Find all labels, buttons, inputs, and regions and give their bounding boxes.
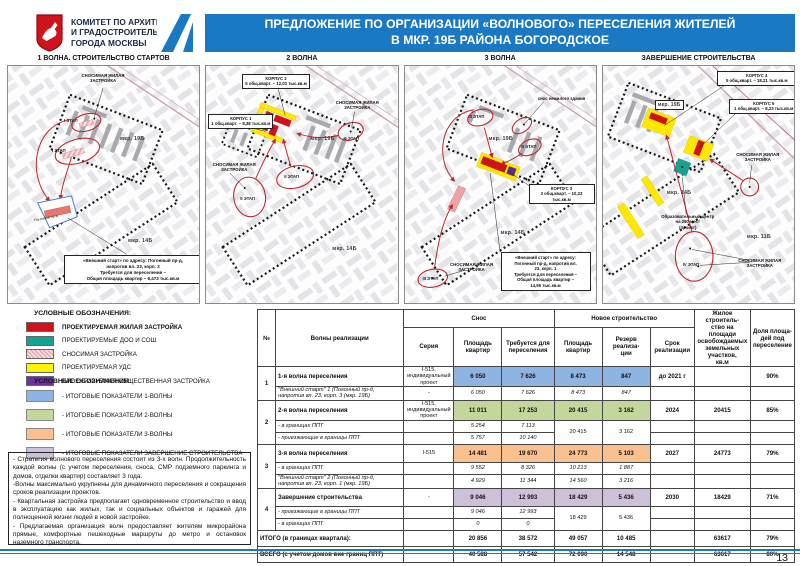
legend-label: ПРОЕКТИРУЕМЫЕ ДОО И СОШ [62, 337, 156, 344]
swatch-wave3 [26, 428, 54, 440]
empty-cell [650, 506, 694, 518]
empty-cell [650, 420, 694, 432]
label-mkr-19b: мкр. 19Б [310, 136, 334, 143]
cell-new-reserve: 3 162 [602, 400, 650, 420]
empty-cell [694, 420, 750, 432]
label-mkr-14b: мкр. 14Б [128, 238, 152, 245]
label-mkr-19b: мкр. 19Б [120, 136, 144, 143]
cell-sub-name: - приезжающие в границы ППТ [276, 432, 404, 444]
cell-new-area: 49 057 [554, 530, 602, 546]
table-row-completion-sub2: - в границах ППТ 0 0 [258, 518, 795, 530]
label-stage-2b: II ЭТАП [240, 196, 255, 201]
empty-cell [694, 432, 750, 444]
empty-cell [404, 432, 454, 444]
map-panel-wave2: КОРПУС 2 5 общ.кварт. – 12,03 тыс.кв.м К… [205, 65, 398, 304]
cell-snos-area: 11 011 [454, 400, 502, 420]
moscow-coat-of-arms-icon [36, 14, 63, 52]
cell-new-area: 14 560 [554, 474, 602, 488]
cell-snos-need: 0 [502, 518, 554, 530]
cell-wave-name: Завершение строительства [276, 488, 404, 506]
cell-dolya: 90% [750, 367, 794, 387]
label-korpus-3: КОРПУС 3 3 общ.кварт. – 10,23 тыс.кв.м [529, 184, 595, 204]
cell-new-area: 18 429 [554, 488, 602, 506]
legend-label: ПРОЕКТИРУЕМАЯ УДС [62, 364, 131, 371]
empty-cell [404, 506, 454, 518]
col-header-num: № [258, 310, 276, 367]
label-mkr-11b: мкр. 11Б [747, 234, 771, 241]
empty-cell [694, 462, 750, 474]
col-header-need: Требуется для переселения [502, 327, 554, 366]
cell-zhil: 18429 [694, 488, 750, 506]
empty-cell [750, 462, 794, 474]
moskomarkhitektura-logo [157, 12, 201, 54]
cell-num: 3 [258, 444, 276, 488]
cell-snos-need: 7 626 [502, 367, 554, 387]
cell-snos-need: 38 572 [502, 530, 554, 546]
callout-external-start-2: «Внешний старт» по адресу: Погонный пр-д… [501, 252, 591, 291]
label-korpus-5: КОРПУС 5 1 общ.кварт. – 8,23 тыс.кв.м [729, 99, 795, 114]
table-row-wave2: 2 2-я волна переселения I-515, индивидуа… [258, 400, 795, 420]
empty-cell [750, 386, 794, 400]
empty-cell [750, 432, 794, 444]
relocation-table: № Волны реализации Снос Новое строительс… [257, 309, 795, 563]
cell-new-reserve: 847 [602, 386, 650, 400]
label-stage-2a: II ЭТАП [284, 174, 299, 179]
cell-dolya: 71% [750, 488, 794, 506]
cell-term: до 2021 г [650, 367, 694, 387]
map2-title: 2 ВОЛНА [205, 55, 398, 62]
label-korpus-1: КОРПУС 1 1 общ.кварт. – 8,38 тыс.кв.м [208, 114, 273, 129]
label-mkr-14b: мкр. 14Б [501, 230, 525, 237]
cell-new-reserve: 10 485 [602, 530, 650, 546]
footer-rule [0, 549, 800, 554]
legend-label: - ИТОГОВЫЕ ПОКАЗАТЕЛИ 1-ВОЛНЫ [62, 393, 172, 400]
table-row-wave2-sub2: - приезжающие в границы ППТ 5 757 10 140 [258, 432, 795, 444]
map-titles-row: 1 ВОЛНА. СТРОИТЕЛЬСТВО СТАРТОВ 2 ВОЛНА 3… [7, 55, 795, 62]
legend-item: - ИТОГОВЫЕ ПОКАЗАТЕЛИ 1-ВОЛНЫ [26, 390, 252, 402]
cell-snos-need: 12 993 [502, 488, 554, 506]
empty-cell [404, 462, 454, 474]
empty-cell [404, 518, 454, 530]
cell-term: 2030 [650, 488, 694, 506]
label-demolished-housing: СНОСИМАЯ ЖИЛАЯ ЗАСТРОЙКА [68, 73, 138, 84]
empty-cell [404, 474, 454, 488]
map3-title: 3 ВОЛНА [404, 55, 597, 62]
empty-cell [694, 518, 750, 530]
label-korpus-4: КОРПУС 4 5 общ.кварт. – 18,21 тыс.кв.м [717, 71, 795, 86]
note-paragraph: -Волны максимально укрупнены для динамич… [13, 481, 246, 498]
cell-snos-area: 20 856 [454, 530, 502, 546]
label-demolished-housing-bottom: СНОСИМАЯ ЖИЛАЯ ЗАСТРОЙКА [731, 258, 789, 269]
cell-snos-need: 12 993 [502, 506, 554, 518]
map-panels-row: СНОСИМАЯ ЖИЛАЯ ЗАСТРОЙКА I ЭТАП I ЭТАП м… [7, 65, 795, 304]
cell-new-area: 20 415 [554, 420, 602, 444]
cell-new-reserve: 3 216 [602, 474, 650, 488]
cell-new-reserve: 1 887 [602, 462, 650, 474]
empty-cell [750, 420, 794, 432]
page-number: 13 [776, 552, 788, 564]
empty-cell [650, 474, 694, 488]
col-header-seriya: Серия [404, 327, 454, 366]
label-stage-4: IV ЭТАП [683, 262, 699, 267]
cell-new-reserve: 847 [602, 367, 650, 387]
note-paragraph: - Квартальная застройка предполагает одн… [13, 498, 246, 523]
label-demolished-housing-right: СНОСИМАЯ ЖИЛАЯ ЗАСТРОЙКА [729, 152, 787, 163]
cell-total-label: ИТОГО (в границах квартала): [258, 530, 404, 546]
legend-item: - ИТОГОВЫЕ ПОКАЗАТЕЛИ 2-ВОЛНЫ [26, 409, 252, 421]
cell-term: 2027 [650, 444, 694, 462]
cell-snos-area: 6 050 [454, 386, 502, 400]
cell-sub-name: - в границах ППТ [276, 462, 404, 474]
map-panel-wave1: СНОСИМАЯ ЖИЛАЯ ЗАСТРОЙКА I ЭТАП I ЭТАП м… [7, 65, 200, 304]
cell-term: 2024 [650, 400, 694, 420]
legend-item: - ИТОГОВЫЕ ПОКАЗАТЕЛИ 3-ВОЛНЫ [26, 428, 252, 440]
table-row-wave3-sub2: "Внешний старт" 2 (Погонный пр-д, напрот… [258, 474, 795, 488]
label-demolished-housing: СНОСИМАЯ ЖИЛАЯ ЗАСТРОЙКА [447, 262, 497, 273]
cell-new-area: 18 429 [554, 506, 602, 530]
cell-dolya: 85% [750, 400, 794, 420]
cell-wave-name: 2-я волна переселения [276, 400, 404, 420]
legend-item: ПРОЕКТИРУЕМАЯ ЖИЛАЯ ЗАСТРОЙКА [26, 322, 252, 332]
empty-cell [694, 386, 750, 400]
label-nonresidential-demolition: снос нежилого здания [533, 96, 591, 101]
col-header-reserve: Резерв реализа- ции [602, 327, 650, 366]
legend-label: - ИТОГОВЫЕ ПОКАЗАТЕЛИ 2-ВОЛНЫ [62, 412, 172, 419]
cell-term [650, 530, 694, 546]
note-paragraph: - Стратегия волнового переселения состои… [13, 456, 246, 481]
legend-zones-title: УСЛОВНЫЕ ОБОЗНАЧЕНИЯ: [34, 310, 252, 317]
map4-title: ЗАВЕРШЕНИЕ СТРОИТЕЛЬСТВА [602, 55, 795, 62]
cell-new-reserve: 5 436 [602, 506, 650, 530]
cell-num: 4 [258, 488, 276, 530]
legend-waves-title: УСЛОВНЫЕ ОБОЗНАЧЕНИЯ: [34, 378, 252, 385]
col-group-new-construction: Новое строительство [554, 310, 694, 328]
cell-seriya: I-515, индивидуальный проект [404, 367, 454, 387]
label-stage-2c: II ЭТАП [344, 136, 359, 141]
cell-sub-name: "Внешний старт" 1 (Погонный пр-д, напрот… [276, 386, 404, 400]
cell-new-area: 8 473 [554, 386, 602, 400]
col-header-waves: Волны реализации [276, 310, 404, 367]
legend-label: - ИТОГОВЫЕ ПОКАЗАТЕЛИ 3-ВОЛНЫ [62, 431, 172, 438]
empty-cell [750, 506, 794, 518]
table-row-total-quarter: ИТОГО (в границах квартала): 20 856 38 5… [258, 530, 795, 546]
cell-snos-area: 6 050 [454, 367, 502, 387]
label-stage-1a: I ЭТАП [64, 118, 78, 123]
cell-snos-area: 5 254 [454, 420, 502, 432]
cell-new-area: 24 773 [554, 444, 602, 462]
label-demolished-housing-right: СНОСИМАЯ ЖИЛАЯ ЗАСТРОЙКА [328, 100, 386, 111]
cell-wave-name: 3-я волна переселения [276, 444, 404, 462]
cell-seriya: I-515 [404, 444, 454, 462]
label-mkr-14b: мкр. 14Б [667, 190, 691, 197]
empty-cell [650, 432, 694, 444]
cell-num: 2 [258, 400, 276, 444]
label-education-center: Образовательный центр на 250 мест (проек… [657, 214, 719, 230]
table-row-wave2-sub1: - в границах ППТ 5 254 7 113 20 415 3 16… [258, 420, 795, 432]
map-panel-wave3: снос нежилого здания КОРПУС 3 3 общ.квар… [404, 65, 597, 304]
cell-zhil: 24773 [694, 444, 750, 462]
cell-seriya: I-515, индивидуальный проект [404, 400, 454, 420]
table-row-wave1-sub: "Внешний старт" 1 (Погонный пр-д, напрот… [258, 386, 795, 400]
label-stage-3a: III ЭТАП [469, 114, 485, 119]
table-row-wave3-sub1: - в границах ППТ 9 552 8 326 10 213 1 88… [258, 462, 795, 474]
col-group-demolition: Снос [404, 310, 554, 328]
legend-item: СНОСИМАЯ ЗАСТРОЙКА [26, 349, 252, 359]
cell-new-area: 8 473 [554, 367, 602, 387]
cell-seriya: - [404, 386, 454, 400]
col-header-area1: Площадь квартир [454, 327, 502, 366]
callout-external-start-1: «Внешний старт» по адресу: Погонный пр-д… [64, 255, 200, 284]
slide-title-line1: ПРЕДЛОЖЕНИЕ ПО ОРГАНИЗАЦИИ «ВОЛНОВОГО» П… [205, 17, 795, 33]
cell-snos-need: 8 326 [502, 462, 554, 474]
cell-new-reserve: 5 103 [602, 444, 650, 462]
label-mkr-19b: мкр. 19Б [655, 100, 684, 110]
cell-new-area: 20 415 [554, 400, 602, 420]
cell-zhil: 63617 [694, 530, 750, 546]
header: КОМИТЕТ ПО АРХИТЕКТУРЕ И ГРАДОСТРОИТЕЛЬС… [0, 12, 800, 54]
cell-snos-need: 11 344 [502, 474, 554, 488]
empty-cell [404, 420, 454, 432]
slide-title-line2: В МКР. 19Б РАЙОНА БОГОРОДСКОЕ [205, 33, 795, 49]
map-panel-completion: КОРПУС 4 5 общ.кварт. – 18,21 тыс.кв.м К… [602, 65, 795, 304]
strategy-notes: - Стратегия волнового переселения состои… [8, 452, 251, 545]
table-row-wave3: 3 3-я волна переселения I-515 14 481 19 … [258, 444, 795, 462]
cell-new-reserve: 5 436 [602, 488, 650, 506]
legend-label: ПРОЕКТИРУЕМАЯ ЖИЛАЯ ЗАСТРОЙКА [62, 324, 182, 331]
cell-snos-area: 9 046 [454, 488, 502, 506]
cell-snos-need: 10 140 [502, 432, 554, 444]
swatch-demolition [26, 349, 54, 359]
table-row-completion-sub1: - приезжающие в границы ППТ 9 046 12 993… [258, 506, 795, 518]
cell-snos-need: 17 253 [502, 400, 554, 420]
cell-snos-need: 19 670 [502, 444, 554, 462]
cell-dolya: 79% [750, 530, 794, 546]
legend-label: СНОСИМАЯ ЗАСТРОЙКА [62, 351, 137, 358]
empty-cell [750, 518, 794, 530]
cell-zhil [694, 367, 750, 387]
label-stage-3c: III ЭТАП [521, 144, 537, 149]
legend-item: ПРОЕКТИРУЕМАЯ УДС [26, 363, 252, 373]
cell-num: 1 [258, 367, 276, 401]
empty-cell [650, 386, 694, 400]
legend-item: ПРОЕКТИРУЕМЫЕ ДОО И СОШ [26, 336, 252, 346]
swatch-roads [26, 363, 54, 373]
cell-sub-name: - приезжающие в границы ППТ [276, 506, 404, 518]
label-stage-1b: I ЭТАП [52, 148, 66, 153]
cell-snos-area: 5 757 [454, 432, 502, 444]
empty-cell [404, 530, 454, 546]
cell-snos-need: 7 113 [502, 420, 554, 432]
cell-new-reserve: 3 162 [602, 420, 650, 444]
label-mkr-19b: мкр. 19Б [489, 136, 513, 143]
label-korpus-2: КОРПУС 2 5 общ.кварт. – 12,03 тыс.кв.м [242, 74, 310, 89]
cell-snos-area: 0 [454, 518, 502, 530]
cell-wave-name: 1-я волна переселения [276, 367, 404, 387]
empty-cell [750, 474, 794, 488]
note-paragraph: - Предлагаемая организация волн предоста… [13, 523, 246, 548]
table-row-completion: 4 Завершение строительства - 9 046 12 99… [258, 488, 795, 506]
cell-zhil: 20415 [694, 400, 750, 420]
cell-sub-name: - в границах ППТ [276, 518, 404, 530]
col-header-dolya: Доля площа- дей под переселение [750, 310, 794, 367]
label-mkr-14b: мкр. 14Б [332, 246, 356, 253]
cell-snos-need: 7 626 [502, 386, 554, 400]
empty-cell [694, 506, 750, 518]
label-demolished-housing-left: СНОСИМАЯ ЖИЛАЯ ЗАСТРОЙКА [208, 162, 260, 173]
label-stage-3d: III ЭТАП [423, 276, 439, 281]
empty-cell [650, 462, 694, 474]
cell-snos-area: 14 481 [454, 444, 502, 462]
swatch-residential [26, 322, 54, 332]
empty-cell [650, 518, 694, 530]
slide-title-banner: ПРЕДЛОЖЕНИЕ ПО ОРГАНИЗАЦИИ «ВОЛНОВОГО» П… [205, 14, 795, 52]
swatch-schools [26, 336, 54, 346]
empty-cell [694, 474, 750, 488]
map1-title: 1 ВОЛНА. СТРОИТЕЛЬСТВО СТАРТОВ [7, 55, 200, 62]
cell-dolya: 79% [750, 444, 794, 462]
cell-sub-name: - в границах ППТ [276, 420, 404, 432]
swatch-wave1 [26, 390, 54, 402]
cell-snos-area: 4 929 [454, 474, 502, 488]
swatch-wave2 [26, 409, 54, 421]
col-header-zhil: Жилое строитель- ство на площади освобож… [694, 310, 750, 367]
cell-new-area: 10 213 [554, 462, 602, 474]
table-row-wave1: 1 1-я волна переселения I-515, индивидуа… [258, 367, 795, 387]
col-header-term: Срок реализации [650, 327, 694, 366]
cell-snos-area: 9 046 [454, 506, 502, 518]
col-header-area2: Площадь квартир [554, 327, 602, 366]
cell-seriya: - [404, 488, 454, 506]
cell-sub-name: "Внешний старт" 2 (Погонный пр-д, напрот… [276, 474, 404, 488]
cell-snos-area: 9 552 [454, 462, 502, 474]
